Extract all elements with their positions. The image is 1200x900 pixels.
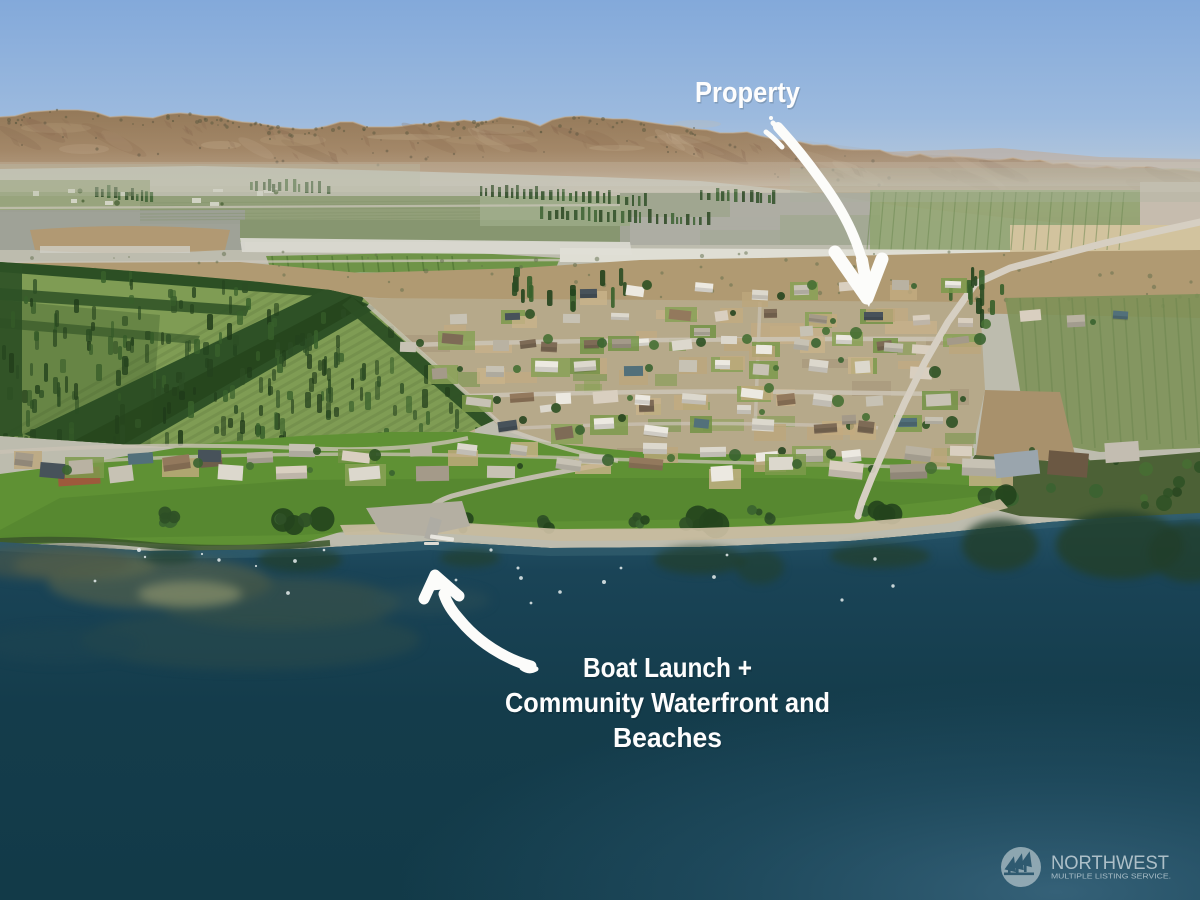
svg-text:Boat Launch +: Boat Launch + [583, 652, 752, 683]
svg-text:NORTHWEST: NORTHWEST [1051, 853, 1169, 874]
svg-text:MULTIPLE LISTING SERVICE.: MULTIPLE LISTING SERVICE. [1051, 874, 1171, 881]
svg-text:Community Waterfront and: Community Waterfront and [505, 687, 830, 718]
svg-text:Property: Property [695, 77, 800, 109]
svg-text:Beaches: Beaches [613, 722, 722, 753]
